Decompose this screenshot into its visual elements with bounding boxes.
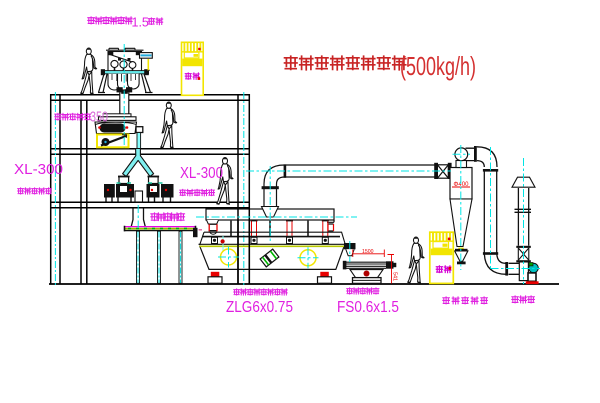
svg-text:Φ400: Φ400 bbox=[454, 182, 470, 188]
svg-text:(500kg/h): (500kg/h) bbox=[400, 51, 476, 81]
svg-text:ZLG6x0.75: ZLG6x0.75 bbox=[226, 299, 293, 316]
svg-text:350: 350 bbox=[90, 110, 108, 126]
svg-text:FS0.6x1.5: FS0.6x1.5 bbox=[337, 299, 399, 316]
svg-text:541: 541 bbox=[391, 272, 397, 281]
svg-text:1.5: 1.5 bbox=[132, 16, 149, 30]
svg-text:XL-300: XL-300 bbox=[14, 161, 63, 178]
svg-text:XL-300: XL-300 bbox=[180, 165, 223, 182]
svg-text:1500: 1500 bbox=[362, 249, 374, 255]
